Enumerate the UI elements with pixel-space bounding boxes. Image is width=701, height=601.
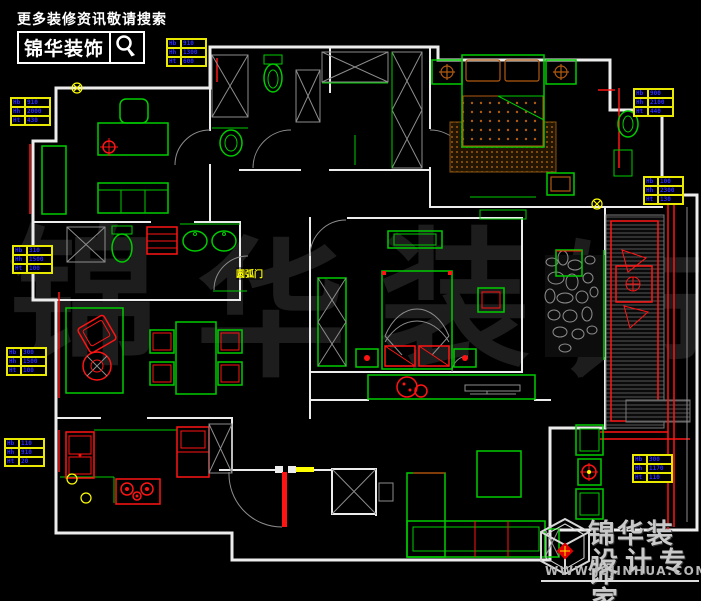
dim-cell: Hb [634,89,648,98]
toilet-2 [112,226,132,262]
terrace-table [578,459,601,485]
dresser [388,231,442,248]
dim-cell: Ht [7,366,21,375]
door-jamb [288,466,296,473]
terrace [576,425,603,519]
dining-room [66,308,242,394]
dim-cell: 1500 [27,255,52,264]
footer-website: WWW.JSJINHUA.COM [545,564,701,578]
hall-closets [322,52,422,168]
stove [116,479,160,504]
dim-cell: Hh [633,464,647,473]
dim-table: Hb100Hh2300Ht130 [643,176,684,205]
study-sofa [98,183,168,213]
dining-table [176,322,216,394]
entry [282,467,393,527]
dining-chairs [150,330,242,385]
search-slogan: 更多装修资讯敬请搜索 [17,9,167,29]
dim-cell: Ht [167,57,181,66]
speaker [379,483,393,501]
nightstand-right [546,60,576,84]
dim-cell: Hb [13,246,27,255]
study-cabinet [42,146,66,214]
dim-cell: 600 [181,57,206,66]
door-jamb [275,466,283,473]
washing-machine [147,227,177,254]
hall-closet [322,52,388,83]
dim-cell: 2000 [25,107,50,116]
dim-cell: Ht [634,107,648,116]
tv-cabinet-strip [368,375,535,399]
dim-cell: Hh [11,107,25,116]
kitchen-sink [66,432,94,478]
dim-cell: 1300 [181,48,206,57]
dim-cell: 910 [181,39,206,48]
fridge [177,427,209,477]
ensuite-bathroom [614,111,638,176]
floorplan-canvas: 锦 华 装 饰 [0,0,701,601]
tv [465,385,520,394]
dim-cell: 910 [25,98,50,107]
dim-table: Hb900Hh2100Ht440 [633,88,674,117]
dim-cell: 110 [19,439,44,448]
coffee-table [477,451,521,497]
deck-lower [626,400,690,422]
dim-cell: 110 [647,473,672,482]
wardrobe [318,278,346,366]
dim-cell: 100 [21,366,46,375]
dim-cell: Hb [11,98,25,107]
terrace-chair [576,425,603,455]
door-swings [175,130,468,527]
kitchen-shaft [209,424,232,473]
dim-cell: Hh [7,357,21,366]
dim-cell: Hb [167,39,181,48]
desk-chair [120,99,148,123]
dim-cell: Hb [633,455,647,464]
entry-shaft [332,469,376,514]
tall-wardrobe [392,52,422,168]
pillow [466,60,500,81]
study-room [42,99,168,214]
ceiling-lamp-icon [100,138,118,156]
dim-table: Hb910Hh1300Ht600 [166,38,207,67]
dim-cell: Ht [644,195,658,204]
dim-cell: Ht [633,473,647,482]
dim-cell: 100 [658,177,683,186]
bed-nightstand-right [454,349,476,367]
dim-cell: 20 [19,457,44,466]
entry-door [282,472,287,527]
dim-table: Hb310Hh1500Ht100 [12,245,53,274]
dim-cell: Hb [5,439,19,448]
magnifier-icon [111,33,141,62]
dim-table: Hb300Hh1170Ht110 [632,454,673,483]
dim-cell: Hb [644,177,658,186]
kitchen [60,424,232,504]
reading-chair [478,288,504,312]
dim-cell: 1170 [647,464,672,473]
dim-cell: 310 [27,246,52,255]
dim-cell: 300 [647,455,672,464]
dim-cell: 440 [648,107,673,116]
shoe-bench [296,467,314,472]
red-armchair [77,314,117,353]
dim-cell: 910 [19,448,44,457]
dim-cell: Ht [11,116,25,125]
brand-logo: 锦华装饰 [17,31,145,64]
toilet [264,55,282,92]
middle-bedroom [318,210,526,369]
round-side-table [83,352,111,380]
bed [382,271,452,369]
master-bedroom [432,55,576,197]
dim-cell: Hb [7,348,21,357]
footer-underline [541,580,699,582]
lounge-rug [66,308,123,393]
bathroom-strip [67,224,240,262]
dim-cell: Ht [13,264,27,273]
dim-cell: 100 [27,264,52,273]
bedroom-chair [547,173,574,195]
round-basin [397,377,427,397]
dim-cell: Ht [5,457,19,466]
blanket [463,96,543,146]
dim-cell: 300 [21,348,46,357]
nightstand-left [432,60,462,84]
dim-cell: Hh [644,186,658,195]
bathroom-top [212,55,320,156]
dim-table: Hb110Hh910Ht20 [4,438,45,467]
dim-cell: 130 [658,195,683,204]
pebble-path [545,250,605,360]
dim-cell: 1500 [21,357,46,366]
pillow [505,60,539,81]
dim-table: Hb300Hh1500Ht100 [6,347,47,376]
brand-name: 锦华装饰 [19,34,109,61]
shower-box [212,55,248,117]
master-bed [462,55,544,147]
bed-nightstand-left [356,349,378,367]
arc-door-label: 圆弧门 [236,267,263,280]
shower-area [67,227,105,262]
dim-cell: Hh [634,98,648,107]
closet-small [296,70,320,122]
dim-table: Hb910Hh2000Ht430 [10,97,51,126]
dim-cell: Hh [5,448,19,457]
dim-cell: 2300 [658,186,683,195]
double-vanity [180,224,240,251]
floorplan-drawing [0,0,701,601]
dim-cell: 2100 [648,98,673,107]
dim-cell: 900 [648,89,673,98]
dim-cell: Hh [13,255,27,264]
dim-cell: 430 [25,116,50,125]
washbasin [220,130,242,156]
dim-cell: Hh [167,48,181,57]
